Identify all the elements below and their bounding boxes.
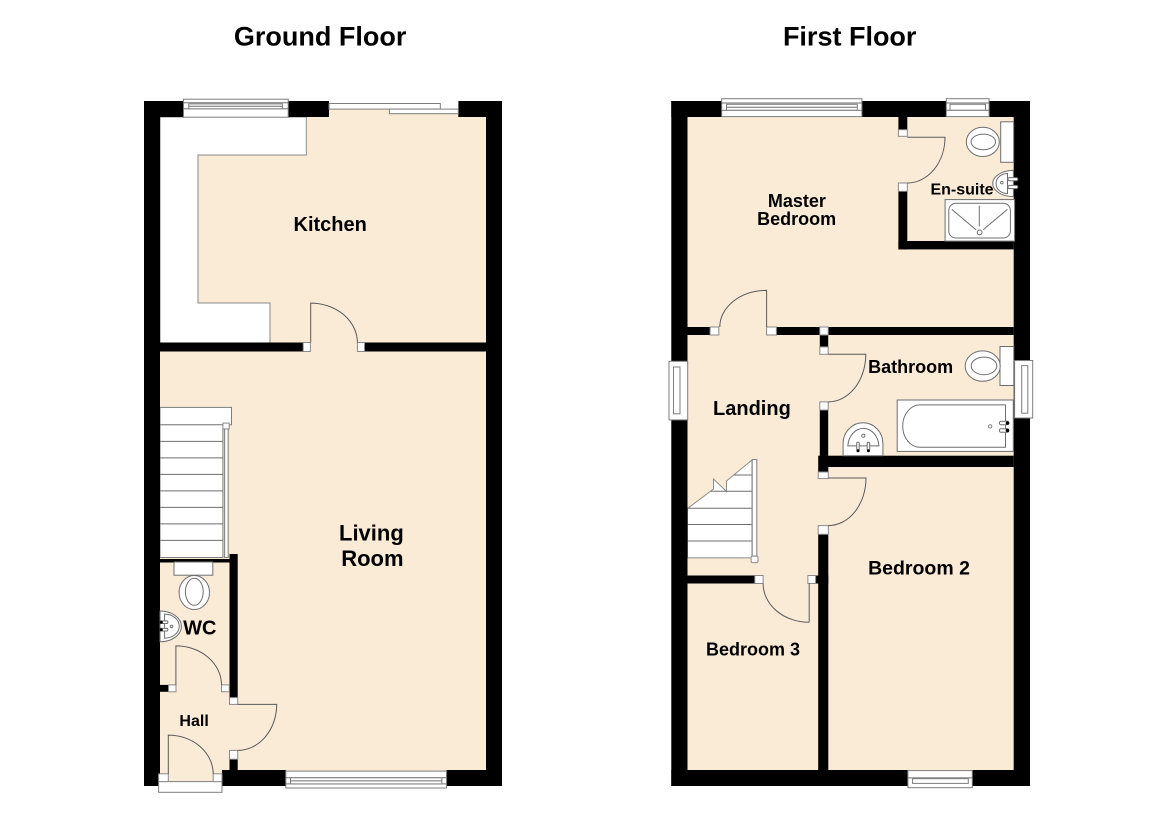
- svg-text:Landing: Landing: [713, 398, 791, 420]
- svg-text:Ground Floor: Ground Floor: [234, 21, 407, 51]
- svg-text:Living: Living: [339, 521, 404, 546]
- svg-text:Bathroom: Bathroom: [868, 357, 953, 377]
- svg-text:Master: Master: [768, 191, 826, 211]
- svg-text:WC: WC: [183, 618, 216, 640]
- svg-text:En-suite: En-suite: [930, 182, 993, 199]
- svg-text:Room: Room: [341, 546, 403, 571]
- svg-text:Bedroom 3: Bedroom 3: [706, 640, 800, 660]
- svg-text:First Floor: First Floor: [783, 21, 917, 51]
- svg-text:Hall: Hall: [179, 713, 208, 730]
- svg-text:Bedroom: Bedroom: [757, 209, 836, 229]
- svg-text:Bedroom 2: Bedroom 2: [868, 558, 970, 580]
- svg-text:Kitchen: Kitchen: [294, 214, 367, 236]
